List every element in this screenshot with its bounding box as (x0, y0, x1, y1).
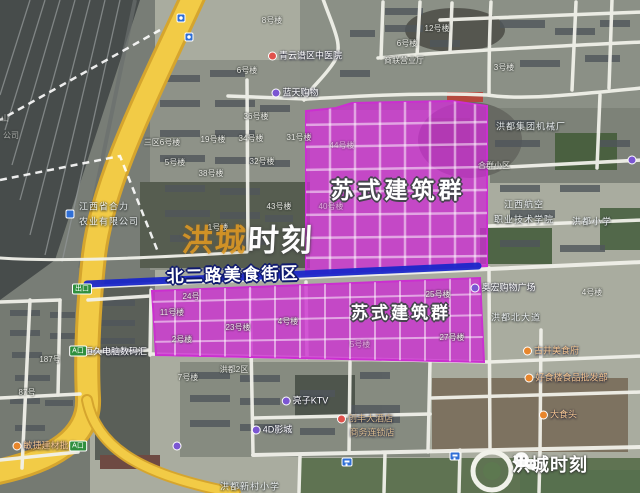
lower-highlight-zone (145, 275, 488, 365)
satellite-map-base (0, 0, 640, 493)
upper-highlight-zone (300, 100, 490, 275)
annotated-satellite-map: 8号楼12号楼6号楼商联营业厅3号楼6号楼36号楼三区6号楼19号楼34号楼5号… (0, 0, 640, 493)
